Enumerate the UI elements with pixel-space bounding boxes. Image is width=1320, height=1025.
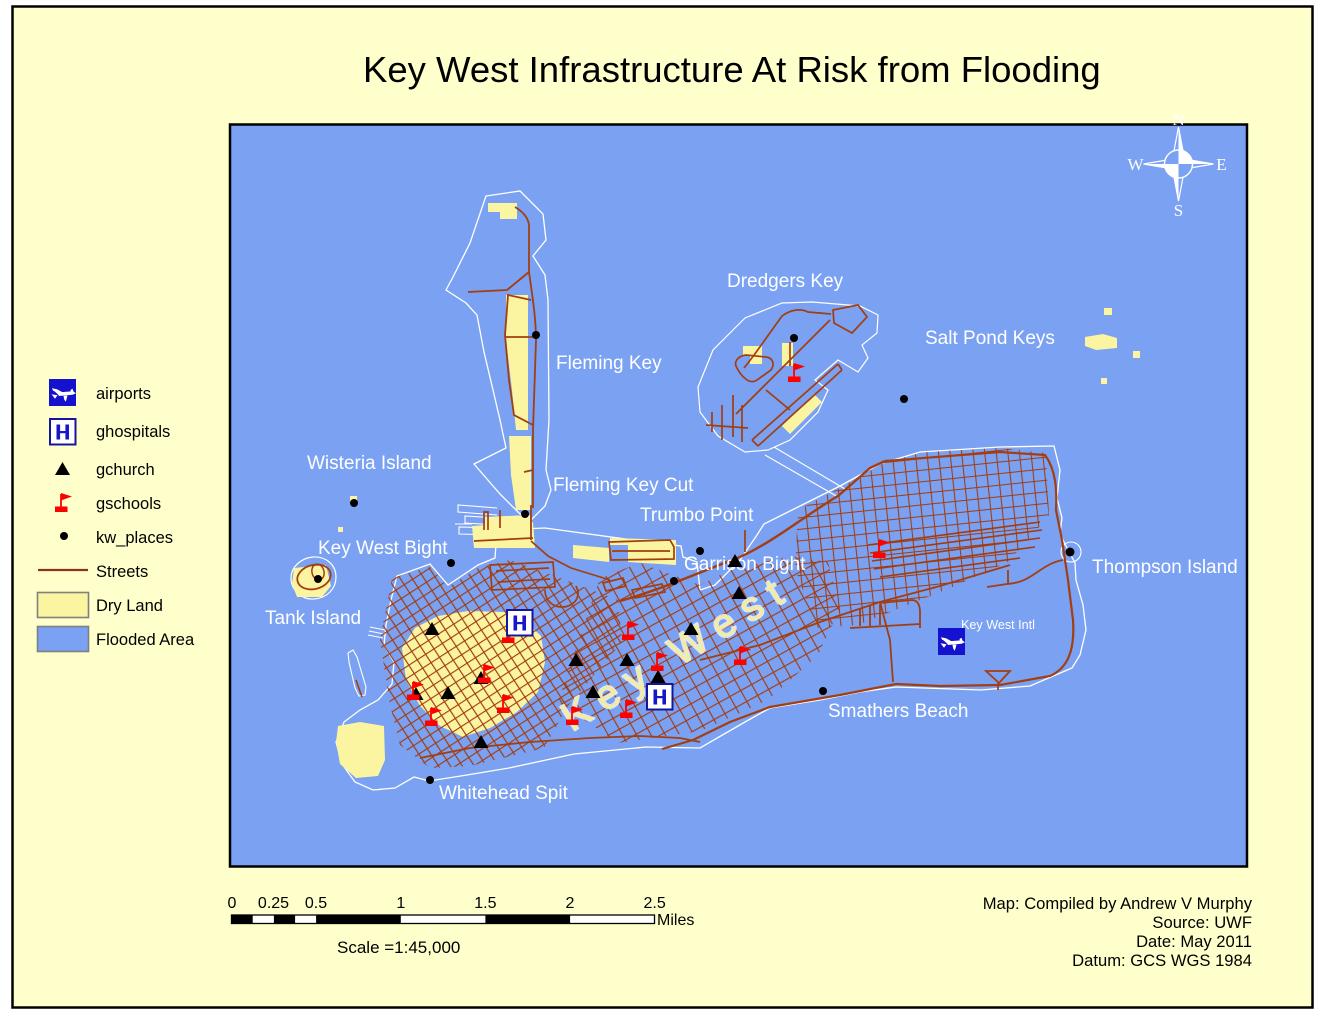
- svg-text:S: S: [1174, 201, 1183, 220]
- svg-text:W: W: [1127, 155, 1144, 174]
- svg-text:Trumbo Point: Trumbo Point: [640, 505, 754, 526]
- svg-text:Key West Infrastructure At Ris: Key West Infrastructure At Risk from Flo…: [363, 49, 1101, 90]
- svg-text:airports: airports: [96, 385, 151, 403]
- svg-text:Date: May 2011: Date: May 2011: [1136, 932, 1252, 951]
- svg-text:Streets: Streets: [96, 563, 148, 581]
- svg-text:ghospitals: ghospitals: [96, 423, 170, 441]
- svg-text:0.25: 0.25: [258, 895, 289, 912]
- svg-text:Tank Island: Tank Island: [265, 608, 361, 629]
- svg-text:Whitehead Spit: Whitehead Spit: [439, 783, 569, 804]
- svg-text:Garrison Bight: Garrison Bight: [684, 554, 806, 575]
- svg-text:0: 0: [228, 895, 237, 912]
- svg-text:Smathers Beach: Smathers Beach: [828, 701, 968, 722]
- svg-text:0.5: 0.5: [305, 895, 327, 912]
- svg-text:Key West Intl: Key West Intl: [961, 618, 1035, 632]
- svg-text:Salt Pond Keys: Salt Pond Keys: [925, 328, 1055, 349]
- svg-text:Wisteria Island: Wisteria Island: [307, 453, 432, 474]
- svg-text:Datum: GCS WGS 1984: Datum: GCS WGS 1984: [1072, 951, 1252, 970]
- svg-text:Key West Bight: Key West Bight: [318, 538, 448, 559]
- svg-text:Thompson Island: Thompson Island: [1092, 557, 1238, 578]
- svg-text:Map: Compiled by Andrew V Murp: Map: Compiled by Andrew V Murphy: [983, 894, 1253, 913]
- svg-text:Fleming Key: Fleming Key: [556, 353, 662, 374]
- svg-text:gschools: gschools: [96, 495, 161, 513]
- svg-text:Scale =1:45,000: Scale =1:45,000: [337, 938, 460, 957]
- svg-text:Source: UWF: Source: UWF: [1152, 913, 1252, 932]
- svg-text:Dredgers Key: Dredgers Key: [727, 271, 844, 292]
- svg-text:kw_places: kw_places: [96, 529, 173, 547]
- svg-text:2: 2: [566, 895, 575, 912]
- svg-text:1: 1: [396, 895, 405, 912]
- svg-text:Fleming Key Cut: Fleming Key Cut: [553, 475, 694, 496]
- svg-text:1.5: 1.5: [474, 895, 496, 912]
- svg-text:Dry Land: Dry Land: [96, 597, 163, 615]
- svg-text:E: E: [1216, 155, 1226, 174]
- svg-text:gchurch: gchurch: [96, 461, 155, 479]
- svg-text:Miles: Miles: [657, 912, 694, 929]
- svg-text:N: N: [1172, 110, 1184, 129]
- svg-text:2.5: 2.5: [643, 895, 665, 912]
- svg-text:Flooded Area: Flooded Area: [96, 631, 195, 649]
